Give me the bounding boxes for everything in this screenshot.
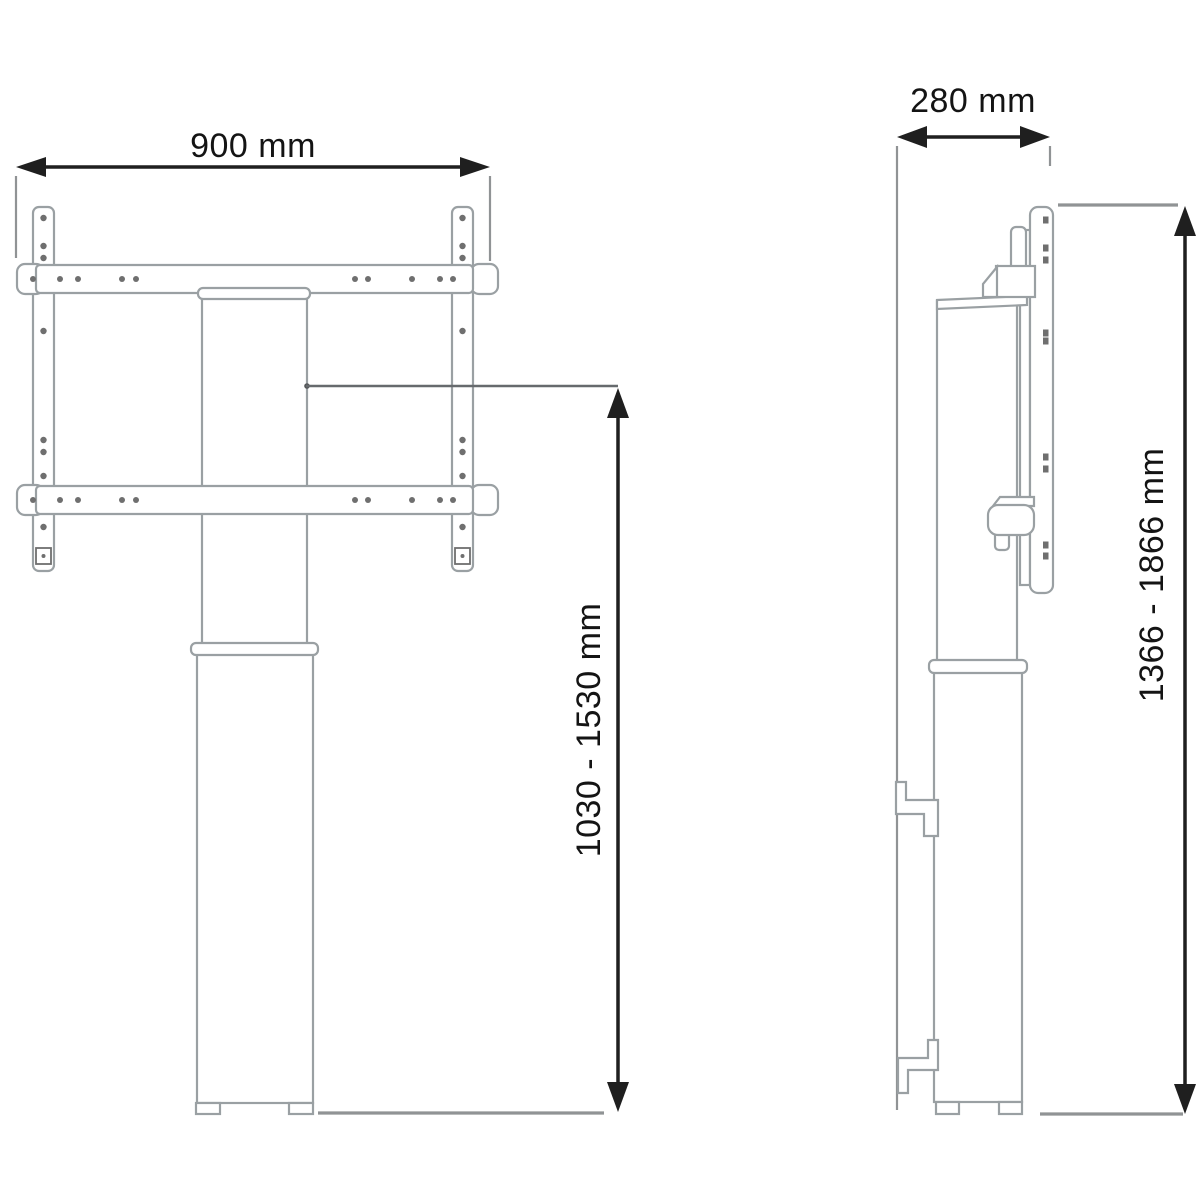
front-foot-left	[196, 1103, 220, 1114]
front-width-dimension: 900 mm	[16, 127, 490, 261]
side-height-dimension: 1366 - 1866 mm	[1040, 205, 1196, 1114]
side-depth-dimension: 280 mm	[897, 82, 1050, 166]
front-outer-column-collar	[191, 643, 318, 655]
side-inner-column	[937, 301, 1017, 667]
side-cable-hook-upper	[896, 782, 938, 836]
side-display-rail	[1030, 207, 1053, 593]
drawing-svg: 900 mm 1030 - 1530 mm	[0, 0, 1200, 1200]
side-outer-column-collar	[929, 660, 1027, 673]
side-depth-label: 280 mm	[910, 82, 1036, 120]
side-foot-front	[999, 1102, 1022, 1114]
front-column-collar	[198, 288, 310, 299]
side-view: 280 mm 1366 - 1866 mm	[896, 82, 1196, 1114]
side-height-label: 1366 - 1866 mm	[1133, 448, 1171, 703]
front-width-label: 900 mm	[190, 127, 316, 165]
side-cable-hook-lower	[898, 1040, 938, 1093]
side-foot-back	[936, 1102, 959, 1114]
front-vesa-rail-left	[33, 207, 54, 571]
technical-drawing-canvas: 900 mm 1030 - 1530 mm	[0, 0, 1200, 1200]
side-outer-column	[934, 666, 1022, 1102]
front-outer-column	[197, 648, 313, 1103]
front-foot-right	[289, 1103, 313, 1114]
front-height-label: 1030 - 1530 mm	[570, 603, 608, 858]
front-view: 900 mm 1030 - 1530 mm	[16, 127, 629, 1114]
front-crossbar-bottom	[17, 485, 498, 515]
front-vesa-rail-right	[452, 207, 473, 571]
front-inner-column	[202, 293, 307, 648]
